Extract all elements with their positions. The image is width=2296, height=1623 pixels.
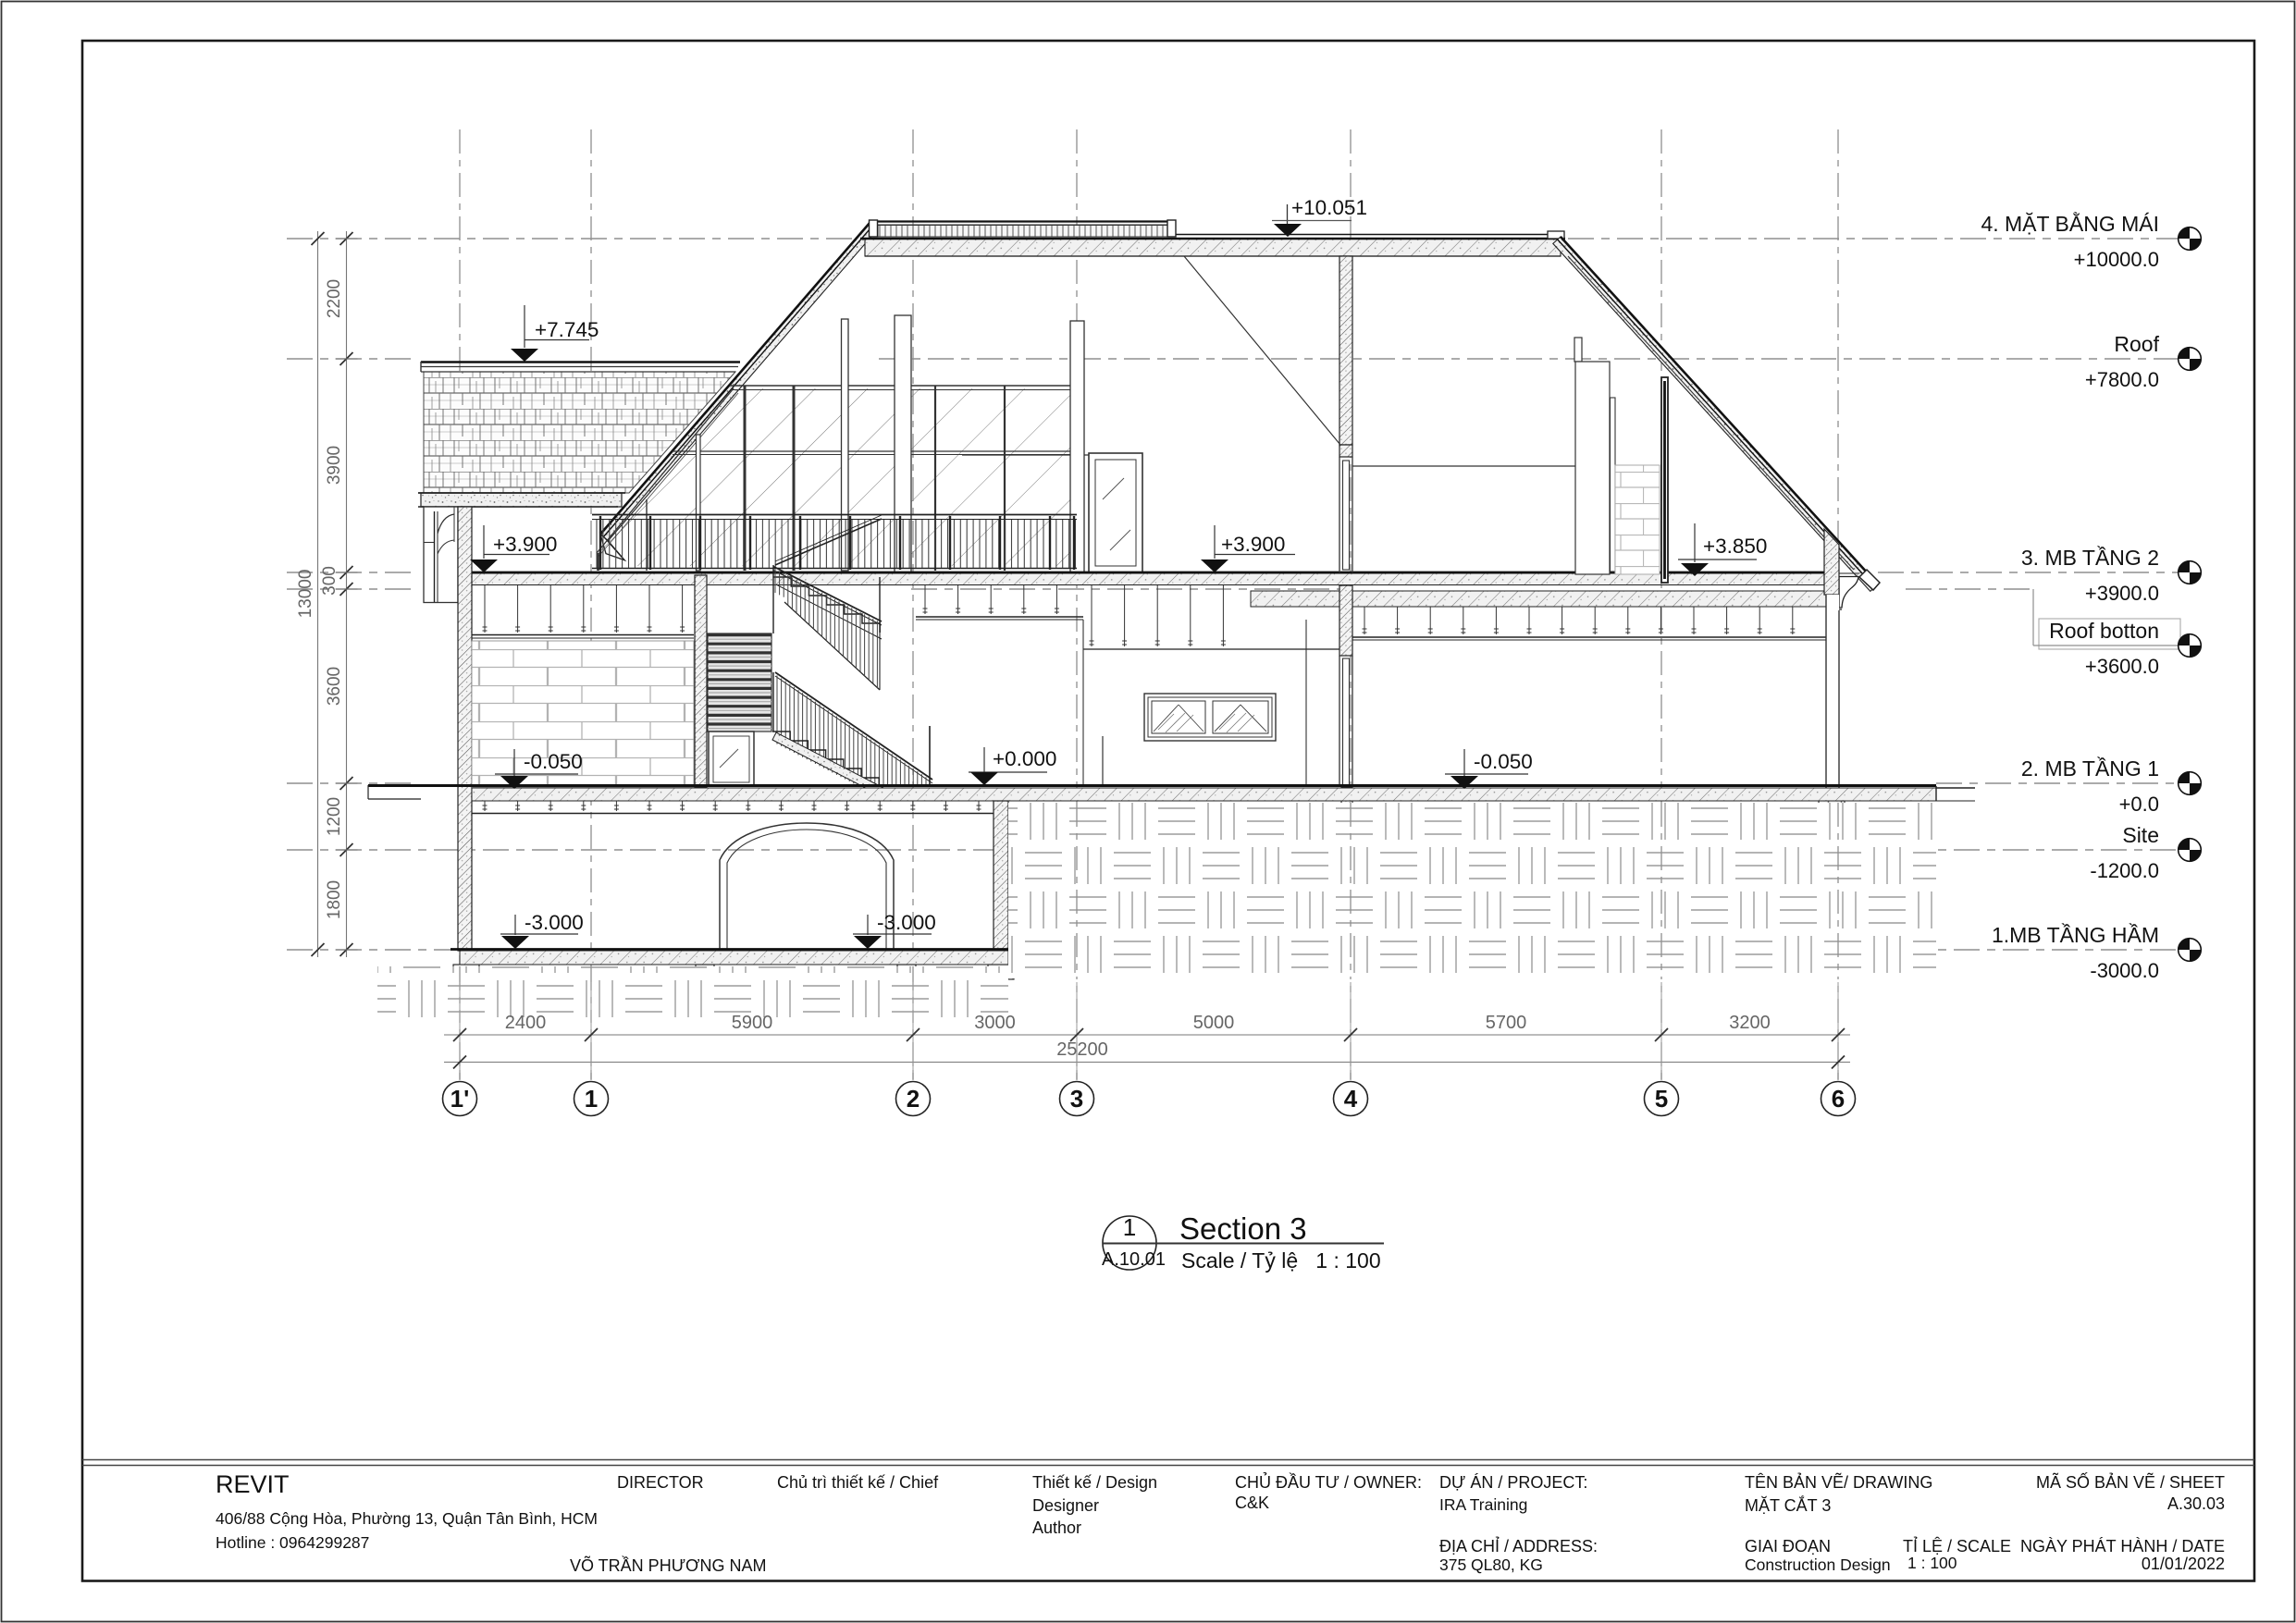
svg-text:300: 300 xyxy=(320,566,339,596)
svg-text:1: 1 xyxy=(1123,1213,1136,1241)
svg-text:Section 3: Section 3 xyxy=(1179,1211,1307,1246)
svg-text:CHỦ ĐẦU TƯ / OWNER:: CHỦ ĐẦU TƯ / OWNER: xyxy=(1235,1472,1422,1492)
svg-text:3600: 3600 xyxy=(325,667,344,706)
svg-text:A.10.01: A.10.01 xyxy=(1102,1249,1166,1270)
svg-text:-0.050: -0.050 xyxy=(524,750,583,773)
svg-text:C&K: C&K xyxy=(1235,1494,1269,1512)
svg-text:+7.745: +7.745 xyxy=(535,318,599,341)
svg-text:Scale / Tỷ lệ 1 : 100: Scale / Tỷ lệ 1 : 100 xyxy=(1181,1248,1381,1273)
svg-text:Author: Author xyxy=(1032,1518,1081,1537)
svg-text:+3.900: +3.900 xyxy=(1221,533,1285,556)
svg-text:ĐỊA CHỈ / ADDRESS:: ĐỊA CHỈ / ADDRESS: xyxy=(1439,1536,1598,1555)
svg-text:3000: 3000 xyxy=(974,1013,1016,1033)
svg-text:2. MB TẦNG 1: 2. MB TẦNG 1 xyxy=(2021,756,2159,781)
svg-text:2400: 2400 xyxy=(505,1013,547,1033)
svg-text:01/01/2022: 01/01/2022 xyxy=(2142,1555,2225,1573)
svg-text:3: 3 xyxy=(1070,1085,1083,1113)
svg-text:3. MB TẦNG 2: 3. MB TẦNG 2 xyxy=(2021,545,2159,570)
svg-text:4: 4 xyxy=(1344,1085,1358,1113)
svg-text:13000: 13000 xyxy=(296,570,315,619)
svg-text:+3.850: +3.850 xyxy=(1703,535,1767,558)
svg-text:A.30.03: A.30.03 xyxy=(2167,1494,2225,1513)
svg-text:Roof: Roof xyxy=(2114,332,2159,356)
svg-text:4. MẶT BẰNG MÁI: 4. MẶT BẰNG MÁI xyxy=(1981,211,2159,236)
svg-text:5: 5 xyxy=(1655,1085,1668,1113)
svg-text:+0.000: +0.000 xyxy=(993,747,1056,770)
svg-text:Roof botton: Roof botton xyxy=(2049,619,2159,643)
svg-text:-3.000: -3.000 xyxy=(525,911,584,934)
svg-text:3200: 3200 xyxy=(1729,1013,1771,1033)
svg-text:+10000.0: +10000.0 xyxy=(2074,248,2159,271)
svg-text:+3.900: +3.900 xyxy=(493,533,557,556)
svg-text:+3600.0: +3600.0 xyxy=(2085,655,2159,678)
svg-text:-3.000: -3.000 xyxy=(877,911,936,934)
svg-text:MÃ SỐ BẢN VẼ / SHEET: MÃ SỐ BẢN VẼ / SHEET xyxy=(2036,1472,2225,1492)
svg-text:TÊN BẢN VẼ/ DRAWING: TÊN BẢN VẼ/ DRAWING xyxy=(1745,1472,1932,1492)
svg-text:1800: 1800 xyxy=(325,880,344,919)
svg-text:Site: Site xyxy=(2122,823,2159,847)
svg-text:1.MB TẦNG HẦM: 1.MB TẦNG HẦM xyxy=(1992,922,2159,947)
svg-text:IRA Training: IRA Training xyxy=(1439,1495,1527,1514)
svg-text:1200: 1200 xyxy=(325,797,344,836)
svg-text:1 : 100: 1 : 100 xyxy=(1907,1554,1957,1572)
svg-text:DIRECTOR: DIRECTOR xyxy=(617,1473,704,1492)
svg-text:1': 1' xyxy=(451,1085,470,1113)
svg-text:Thiết kế / Design: Thiết kế / Design xyxy=(1032,1473,1157,1492)
svg-text:-0.050: -0.050 xyxy=(1474,750,1533,773)
svg-text:1: 1 xyxy=(585,1085,598,1113)
svg-text:+3900.0: +3900.0 xyxy=(2085,582,2159,605)
svg-text:VÕ TRẦN PHƯƠNG NAM: VÕ TRẦN PHƯƠNG NAM xyxy=(570,1555,767,1575)
svg-text:-1200.0: -1200.0 xyxy=(2090,859,2159,882)
svg-text:5900: 5900 xyxy=(732,1013,773,1033)
svg-text:+10.051: +10.051 xyxy=(1291,196,1367,219)
svg-text:6: 6 xyxy=(1832,1085,1845,1113)
svg-text:REVIT: REVIT xyxy=(216,1470,290,1498)
svg-text:5700: 5700 xyxy=(1486,1013,1527,1033)
svg-text:Hotline : 0964299287: Hotline : 0964299287 xyxy=(216,1533,369,1552)
svg-text:DỰ ÁN / PROJECT:: DỰ ÁN / PROJECT: xyxy=(1439,1473,1587,1492)
svg-text:25200: 25200 xyxy=(1056,1039,1108,1060)
svg-text:Designer: Designer xyxy=(1032,1496,1099,1515)
svg-text:5000: 5000 xyxy=(1193,1013,1235,1033)
svg-text:3900: 3900 xyxy=(325,446,344,485)
svg-text:MẶT CẮT 3: MẶT CẮT 3 xyxy=(1745,1495,1831,1515)
svg-text:406/88 Cộng Hòa, Phường 13, Qu: 406/88 Cộng Hòa, Phường 13, Quận Tân Bìn… xyxy=(216,1509,598,1528)
svg-text:2200: 2200 xyxy=(325,279,344,318)
svg-text:-3000.0: -3000.0 xyxy=(2090,959,2159,982)
svg-text:Chủ trì thiết kế / Chief: Chủ trì thiết kế / Chief xyxy=(777,1473,939,1492)
svg-text:+7800.0: +7800.0 xyxy=(2085,368,2159,391)
svg-text:2: 2 xyxy=(907,1085,920,1113)
svg-text:Construction Design: Construction Design xyxy=(1745,1555,1891,1574)
svg-text:375 QL80, KG: 375 QL80, KG xyxy=(1439,1555,1543,1574)
svg-text:+0.0: +0.0 xyxy=(2119,793,2159,816)
svg-text:NGÀY PHÁT HÀNH / DATE: NGÀY PHÁT HÀNH / DATE xyxy=(2020,1537,2225,1555)
svg-text:TỈ LỆ / SCALE: TỈ LỆ / SCALE xyxy=(1903,1536,2011,1555)
svg-text:GIAI ĐOẠN: GIAI ĐOẠN xyxy=(1745,1537,1831,1555)
